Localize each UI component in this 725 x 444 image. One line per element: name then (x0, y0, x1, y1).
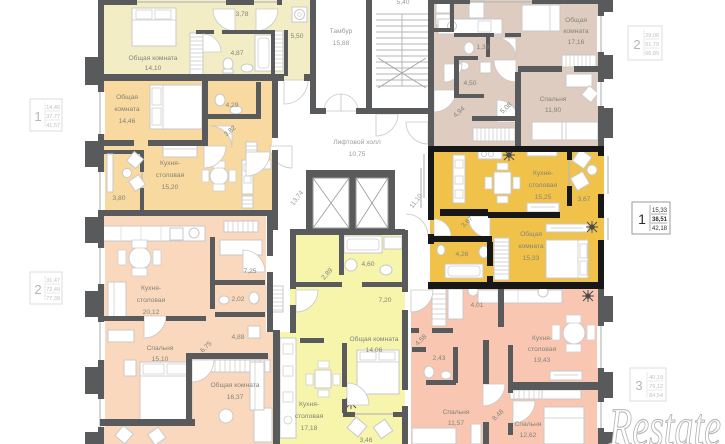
svg-text:77,39: 77,39 (46, 296, 60, 302)
svg-text:3,78: 3,78 (235, 11, 248, 18)
svg-text:15,33: 15,33 (523, 255, 540, 262)
svg-text:Кухня-: Кухня- (160, 160, 180, 167)
svg-text:15,33: 15,33 (652, 208, 668, 214)
svg-text:Кухня-: Кухня- (532, 335, 552, 342)
svg-text:66,89: 66,89 (645, 51, 659, 57)
svg-text:2: 2 (34, 282, 41, 297)
svg-text:2,43: 2,43 (432, 355, 445, 362)
svg-text:столовая: столовая (528, 346, 557, 353)
svg-text:4,26: 4,26 (455, 251, 468, 258)
svg-text:15,10: 15,10 (152, 356, 169, 363)
svg-text:Кухня-: Кухня- (533, 170, 553, 177)
svg-text:Общая комната: Общая комната (349, 335, 398, 343)
svg-text:2: 2 (633, 37, 640, 52)
svg-text:42,18: 42,18 (652, 226, 668, 232)
svg-text:31,47: 31,47 (46, 278, 60, 284)
svg-text:17,18: 17,18 (301, 425, 318, 432)
svg-text:Тамбур: Тамбур (330, 27, 353, 35)
svg-text:Общая: Общая (565, 16, 587, 24)
svg-text:Общая: Общая (520, 230, 542, 238)
svg-text:1,39: 1,39 (476, 44, 489, 51)
svg-text:14,46: 14,46 (119, 118, 136, 125)
svg-text:4,50: 4,50 (463, 80, 476, 87)
svg-text:3,46: 3,46 (359, 437, 372, 444)
svg-text:38,51: 38,51 (652, 217, 668, 223)
svg-text:5,50: 5,50 (290, 33, 303, 40)
svg-text:столовая: столовая (295, 413, 324, 420)
svg-text:17,16: 17,16 (568, 39, 585, 46)
svg-text:61,79: 61,79 (645, 42, 659, 48)
svg-text:Лифтовой холл: Лифтовой холл (333, 138, 381, 146)
svg-text:14,06: 14,06 (366, 347, 383, 354)
svg-text:14,46: 14,46 (46, 105, 60, 111)
svg-text:комната: комната (114, 106, 140, 113)
svg-text:7,20: 7,20 (378, 297, 391, 304)
svg-text:40,19: 40,19 (649, 375, 663, 381)
svg-text:14,10: 14,10 (145, 65, 162, 72)
svg-text:комната: комната (518, 243, 544, 250)
svg-text:7,25: 7,25 (243, 268, 256, 275)
svg-text:4,60: 4,60 (361, 261, 374, 268)
svg-text:15,20: 15,20 (162, 184, 179, 191)
svg-text:Спальня: Спальня (443, 409, 470, 416)
svg-text:столовая: столовая (137, 297, 166, 304)
svg-text:Кухня-: Кухня- (141, 285, 161, 292)
svg-text:4,88: 4,88 (231, 334, 244, 341)
svg-text:29,06: 29,06 (645, 33, 659, 39)
svg-text:3,80: 3,80 (112, 195, 125, 202)
svg-text:16,37: 16,37 (227, 394, 244, 401)
svg-text:4,01: 4,01 (470, 302, 483, 309)
svg-text:Спальня: Спальня (540, 96, 567, 103)
svg-text:37,77: 37,77 (46, 114, 60, 120)
svg-text:79,12: 79,12 (649, 384, 663, 390)
svg-text:Спальня: Спальня (515, 421, 542, 428)
svg-text:11,90: 11,90 (545, 107, 562, 114)
svg-text:Общая: Общая (116, 93, 138, 101)
svg-text:20,12: 20,12 (143, 309, 160, 316)
svg-text:комната: комната (563, 28, 589, 35)
svg-text:1: 1 (34, 109, 41, 124)
svg-text:19,43: 19,43 (534, 357, 551, 364)
svg-text:12,62: 12,62 (520, 432, 537, 439)
svg-text:Кухня-: Кухня- (299, 401, 319, 408)
svg-text:11,57: 11,57 (448, 420, 465, 427)
svg-text:Спальня: Спальня (147, 345, 174, 352)
svg-text:41,57: 41,57 (46, 123, 60, 129)
svg-text:4,29: 4,29 (225, 102, 238, 109)
svg-text:3: 3 (635, 378, 642, 393)
svg-text:1: 1 (638, 211, 646, 227)
svg-text:3,67: 3,67 (577, 196, 590, 203)
svg-text:72,49: 72,49 (46, 287, 60, 293)
svg-text:4,87: 4,87 (230, 50, 243, 57)
svg-text:Общая комната: Общая комната (210, 381, 259, 389)
svg-text:столовая: столовая (156, 172, 185, 179)
svg-text:Restate: Restate (608, 397, 721, 444)
svg-text:5,40: 5,40 (396, 0, 409, 6)
svg-text:10,75: 10,75 (349, 151, 366, 158)
svg-text:2,02: 2,02 (231, 296, 244, 303)
svg-text:15,25: 15,25 (535, 194, 552, 201)
svg-text:Общая комната: Общая комната (128, 54, 177, 62)
svg-text:столовая: столовая (529, 182, 558, 189)
svg-text:15,88: 15,88 (333, 40, 350, 47)
